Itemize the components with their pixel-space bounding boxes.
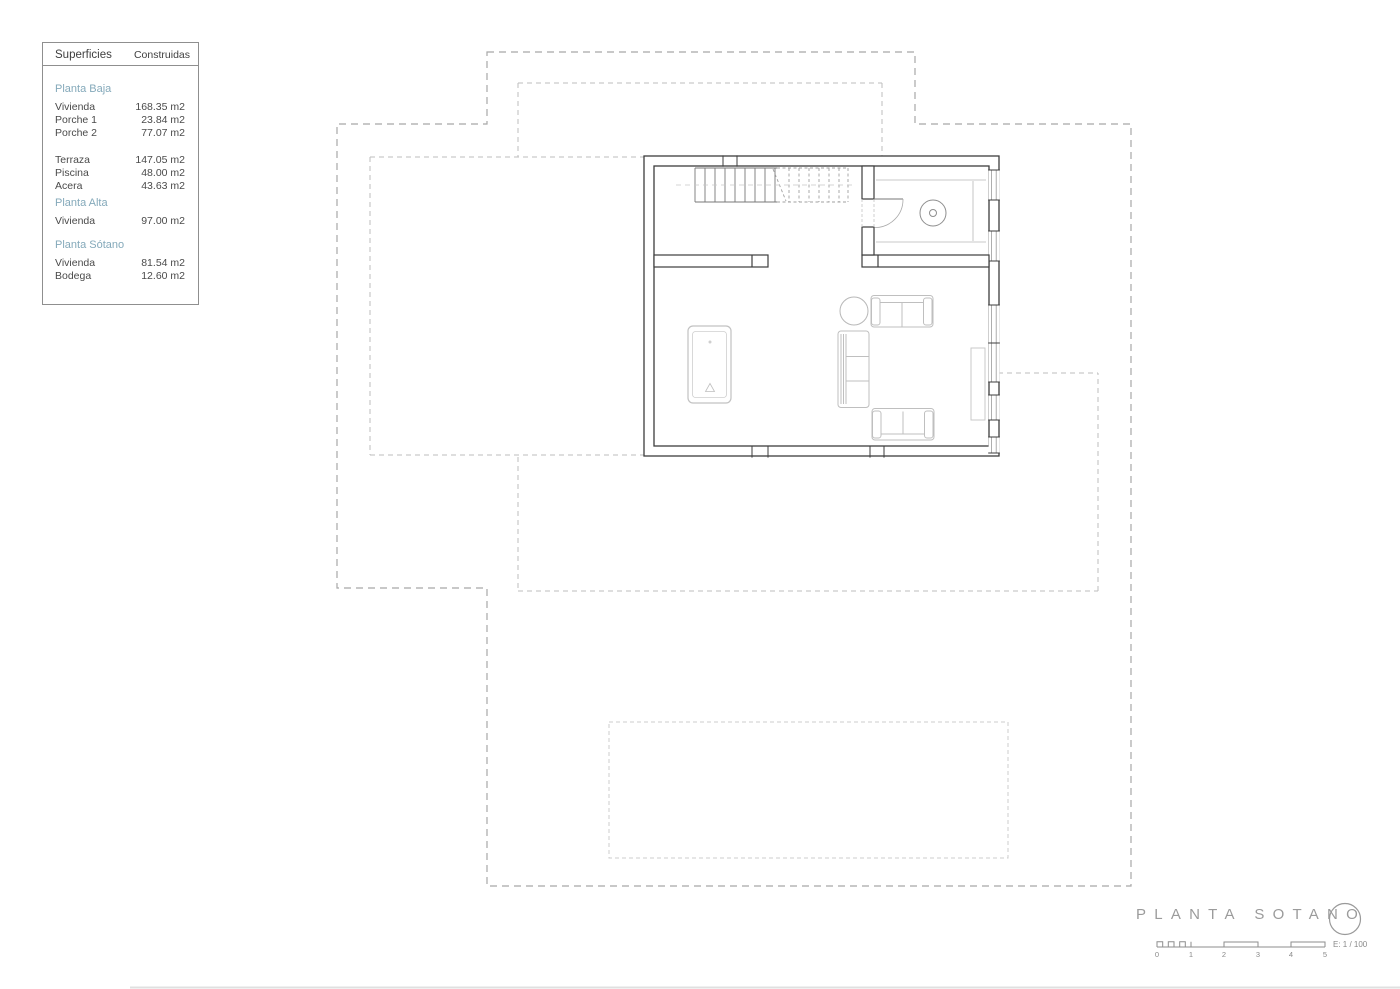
sofa-bottom — [872, 409, 934, 441]
basement-exterior-walls — [644, 156, 999, 456]
legend-header-col2: Construidas — [134, 49, 190, 61]
legend-row-value: 81.54 m2 — [141, 257, 185, 270]
legend-row: Vivienda 97.00 m2 — [43, 215, 198, 228]
legend-row-value: 12.60 m2 — [141, 270, 185, 283]
sofa-left — [838, 331, 869, 408]
sofa-top — [871, 296, 933, 328]
legend-row: Vivienda 81.54 m2 — [43, 257, 198, 270]
pool-outline-dashed — [609, 722, 1008, 858]
legend-row: Piscina 48.00 m2 — [43, 167, 198, 180]
scale-tick-3: 3 — [1252, 950, 1264, 959]
legend-row-label: Bodega — [55, 270, 91, 283]
legend-row: Bodega 12.60 m2 — [43, 270, 198, 283]
legend-row-value: 43.63 m2 — [141, 180, 185, 193]
legend-row-value: 48.00 m2 — [141, 167, 185, 180]
scale-tick-4: 4 — [1285, 950, 1297, 959]
basement-floor-plan — [0, 0, 1400, 989]
legend-row-label: Vivienda — [55, 101, 95, 114]
legend-row-value: 77.07 m2 — [141, 127, 185, 140]
legend-row-label: Vivienda — [55, 215, 95, 228]
scale-ratio-label: E: 1 / 100 — [1333, 940, 1367, 949]
legend-row: Vivienda 168.35 m2 — [43, 101, 198, 114]
drawing-sheet: { "legend": { "header_col1": "Superficie… — [0, 0, 1400, 989]
round-side-table — [840, 297, 868, 325]
surface-areas-legend: Superficies Construidas Planta Baja Vivi… — [42, 42, 199, 305]
legend-row-label: Vivienda — [55, 257, 95, 270]
scale-tick-5: 5 — [1319, 950, 1331, 959]
scale-tick-0: 0 — [1151, 950, 1163, 959]
legend-row: Porche 2 77.07 m2 — [43, 127, 198, 140]
billiard-table — [688, 326, 731, 403]
graphic-scale-bar — [1157, 942, 1325, 947]
scale-tick-2: 2 — [1218, 950, 1230, 959]
legend-row: Terraza 147.05 m2 — [43, 154, 198, 167]
legend-row-label: Piscina — [55, 167, 89, 180]
legend-row-value: 23.84 m2 — [141, 114, 185, 127]
legend-row: Porche 1 23.84 m2 — [43, 114, 198, 127]
legend-section-title: Planta Baja — [43, 83, 198, 96]
legend-header: Superficies Construidas — [43, 43, 198, 66]
plan-title: PLANTA SOTANO — [1136, 906, 1366, 923]
cue-ball-icon — [709, 341, 712, 344]
legend-section-title: Planta Alta — [43, 197, 198, 210]
legend-header-col1: Superficies — [55, 49, 112, 61]
legend-row-label: Porche 1 — [55, 114, 97, 127]
legend-section-title: Planta Sótano — [43, 239, 198, 252]
legend-row-label: Acera — [55, 180, 82, 193]
legend-row-value: 97.00 m2 — [141, 215, 185, 228]
legend-row-label: Terraza — [55, 154, 90, 167]
legend-row: Acera 43.63 m2 — [43, 180, 198, 193]
legend-row-value: 168.35 m2 — [135, 101, 185, 114]
legend-row-value: 147.05 m2 — [135, 154, 185, 167]
scale-tick-1: 1 — [1185, 950, 1197, 959]
legend-row-label: Porche 2 — [55, 127, 97, 140]
